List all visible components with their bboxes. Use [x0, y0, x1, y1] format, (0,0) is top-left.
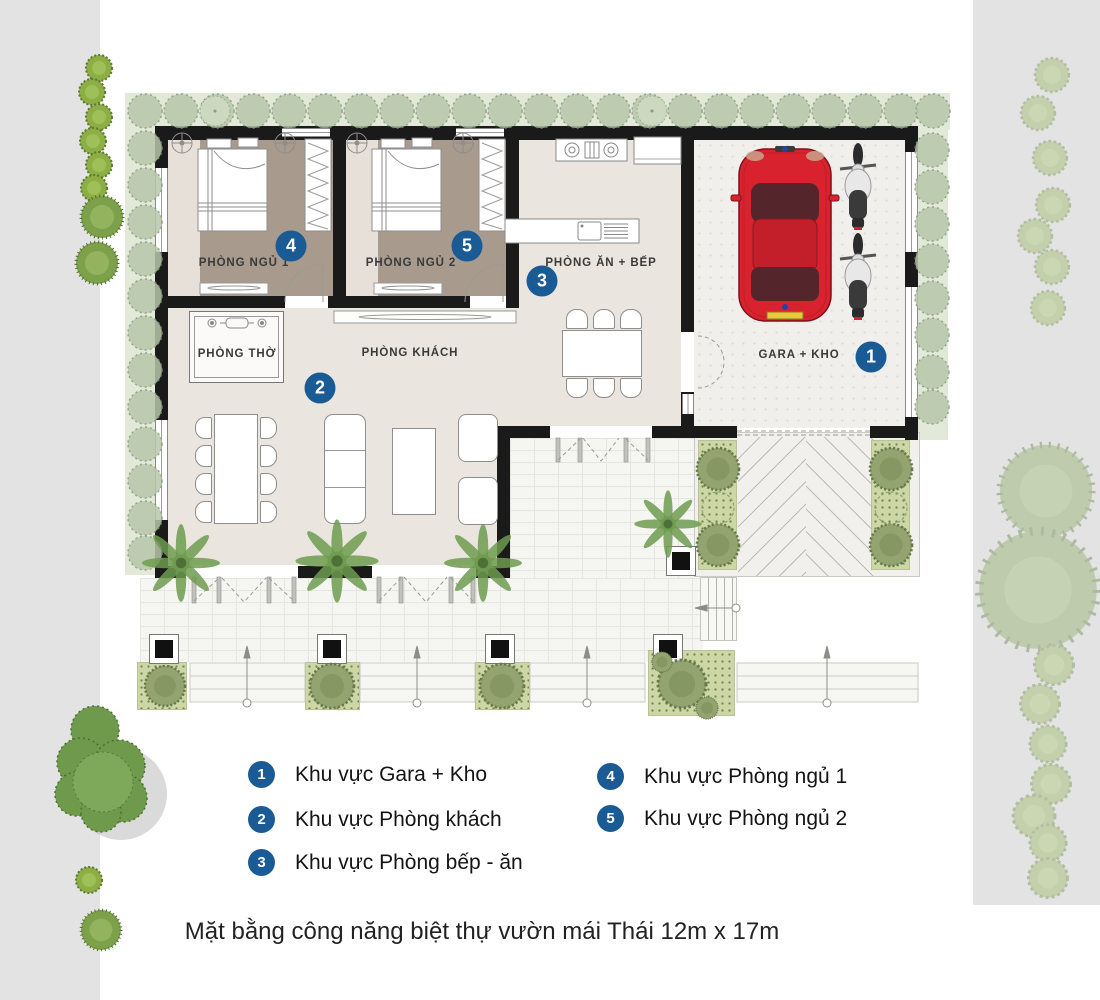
- legend-item: 1 Khu vực Gara + Kho: [248, 761, 487, 788]
- chair: [566, 309, 588, 329]
- driveway-chevron-right: [806, 437, 874, 576]
- window: [155, 168, 168, 252]
- legend-badge-5: 5: [597, 805, 624, 832]
- driveway-chevron-left: [738, 437, 806, 576]
- window: [155, 420, 168, 520]
- legend-label-3: Khu vực Phòng bếp - ăn: [295, 851, 523, 875]
- column: [485, 634, 515, 664]
- left-gray-band: [0, 0, 100, 1000]
- living-table: [214, 414, 258, 524]
- chair: [620, 309, 642, 329]
- wall: [681, 126, 694, 332]
- chair: [566, 378, 588, 398]
- wall: [333, 140, 346, 308]
- zone-marker-1: 1: [856, 342, 887, 373]
- room-label-bedroom1: PHÒNG NGỦ 1: [199, 257, 289, 269]
- porch-planter-1: [137, 662, 187, 710]
- legend-badge-1: 1: [248, 761, 275, 788]
- legend-item: 5 Khu vực Phòng ngủ 2: [597, 805, 847, 832]
- window: [682, 394, 694, 414]
- wall: [506, 140, 519, 308]
- armchair: [458, 477, 498, 525]
- legend-badge-4: 4: [597, 763, 624, 790]
- porch-planter-2: [305, 662, 360, 710]
- wall: [506, 426, 550, 438]
- legend-item: 3 Khu vực Phòng bếp - ăn: [248, 849, 523, 876]
- zone-marker-5: 5: [452, 231, 483, 262]
- wall: [497, 426, 510, 578]
- wall: [298, 566, 372, 578]
- porch-planter-3: [475, 662, 530, 710]
- coffee-table: [392, 428, 436, 515]
- wall: [870, 426, 918, 438]
- window: [905, 152, 918, 252]
- kitchen-dining-table: [562, 330, 642, 377]
- legend-badge-2: 2: [248, 806, 275, 833]
- window: [282, 128, 330, 137]
- chair: [620, 378, 642, 398]
- room-label-worship: PHÒNG THỜ: [198, 348, 277, 360]
- zone-marker-2: 2: [305, 373, 336, 404]
- garage-floor: [694, 140, 905, 428]
- legend-label-2: Khu vực Phòng khách: [295, 808, 502, 832]
- worship-cabinet: [189, 311, 284, 383]
- wall: [155, 296, 285, 308]
- legend-badge-3: 3: [248, 849, 275, 876]
- room-label-bedroom2: PHÒNG NGỦ 2: [366, 257, 456, 269]
- column: [149, 634, 179, 664]
- window: [456, 128, 504, 137]
- bedroom1-floor-strip: [168, 140, 200, 296]
- chair: [593, 378, 615, 398]
- column: [653, 634, 683, 664]
- wall: [652, 426, 694, 438]
- chair: [195, 473, 212, 495]
- wall: [694, 426, 737, 438]
- chair: [593, 309, 615, 329]
- wall: [155, 566, 186, 578]
- legend-item: 2 Khu vực Phòng khách: [248, 806, 502, 833]
- column: [317, 634, 347, 664]
- driveway-planter-left: [698, 440, 737, 570]
- chair: [195, 417, 212, 439]
- wall: [328, 296, 470, 308]
- wall: [155, 126, 918, 140]
- worship-cabinet-inner: [194, 316, 279, 378]
- hedge-top: [125, 93, 950, 130]
- zone-marker-4: 4: [276, 231, 307, 262]
- room-label-garage: GARA + KHO: [758, 349, 839, 361]
- legend-label-5: Khu vực Phòng ngủ 2: [644, 807, 847, 831]
- bedroom2-floor-strip: [346, 140, 378, 296]
- window: [905, 287, 918, 417]
- driveway-planter-right: [871, 440, 910, 570]
- hedge-right: [918, 130, 948, 440]
- zone-marker-3: 3: [527, 266, 558, 297]
- sofa: [324, 414, 366, 524]
- room-label-kitchen: PHÒNG ĂN + BẾP: [545, 257, 656, 269]
- wall: [476, 566, 510, 578]
- chair: [195, 445, 212, 467]
- legend-label-4: Khu vực Phòng ngủ 1: [644, 765, 847, 789]
- armchair: [458, 414, 498, 462]
- driveway-steps: [700, 577, 737, 641]
- plan-caption: Mặt bằng công năng biệt thự vườn mái Thá…: [185, 918, 779, 946]
- room-label-living: PHÒNG KHÁCH: [362, 347, 459, 359]
- right-gray-band: [973, 0, 1100, 905]
- chair: [195, 501, 212, 523]
- floorplan-page: PHÒNG NGỦ 1 PHÒNG NGỦ 2 PHÒNG ĂN + BẾP P…: [0, 0, 1100, 1000]
- legend-label-1: Khu vực Gara + Kho: [295, 763, 487, 787]
- terrace-main: [140, 578, 703, 662]
- legend-item: 4 Khu vực Phòng ngủ 1: [597, 763, 847, 790]
- column: [666, 546, 696, 576]
